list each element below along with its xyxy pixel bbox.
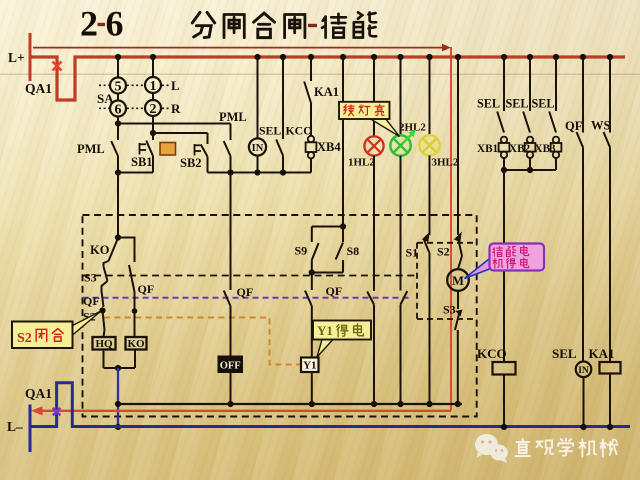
svg-text:1HL2: 1HL2 <box>348 157 375 169</box>
svg-text:S9: S9 <box>295 244 308 258</box>
svg-text:QF: QF <box>326 284 343 298</box>
svg-text:QA1: QA1 <box>25 81 52 96</box>
svg-text:SEL: SEL <box>532 97 555 111</box>
svg-text:KA1: KA1 <box>314 85 339 99</box>
svg-text:QF: QF <box>237 285 254 299</box>
svg-text:6: 6 <box>106 4 124 44</box>
svg-text:L+: L+ <box>8 50 25 65</box>
svg-text:SA: SA <box>97 91 114 106</box>
svg-text:OFF: OFF <box>220 361 241 372</box>
svg-text:SEL: SEL <box>259 124 281 138</box>
svg-text:KO: KO <box>90 243 110 257</box>
svg-text:SB1: SB1 <box>131 155 153 169</box>
svg-text:L–: L– <box>7 419 23 434</box>
svg-text:L: L <box>171 78 180 93</box>
svg-text:6: 6 <box>115 103 122 118</box>
svg-text:KA1: KA1 <box>589 346 615 361</box>
svg-text:IN: IN <box>252 143 264 154</box>
svg-text:XB2: XB2 <box>509 143 531 155</box>
svg-text:KO: KO <box>127 338 145 350</box>
svg-text:R: R <box>171 101 181 116</box>
svg-text:S1: S1 <box>406 246 419 260</box>
svg-text:M: M <box>452 274 464 288</box>
svg-text:KCO: KCO <box>477 346 507 361</box>
svg-text:SB2: SB2 <box>180 156 202 170</box>
svg-text:S2: S2 <box>437 245 450 259</box>
svg-text:1: 1 <box>150 79 157 94</box>
svg-text:IN: IN <box>578 366 589 376</box>
svg-text:XB4: XB4 <box>317 140 341 154</box>
svg-text:XB3: XB3 <box>535 143 557 155</box>
svg-text:Y1: Y1 <box>317 323 333 338</box>
svg-text:WS: WS <box>591 119 611 133</box>
svg-text:2: 2 <box>80 4 98 44</box>
svg-text:QA1: QA1 <box>25 386 52 401</box>
svg-text:XB1: XB1 <box>477 143 499 155</box>
svg-text:S3: S3 <box>84 271 97 285</box>
svg-text:HQ: HQ <box>95 338 113 350</box>
svg-text:QF: QF <box>565 119 583 133</box>
svg-text:PML: PML <box>219 110 247 124</box>
svg-text:QF: QF <box>138 282 155 296</box>
svg-text:KCO: KCO <box>286 124 313 138</box>
svg-text:PML: PML <box>77 142 105 156</box>
svg-text:S3: S3 <box>443 303 456 317</box>
svg-text:Y1: Y1 <box>303 360 316 372</box>
svg-text:S8: S8 <box>347 244 360 258</box>
svg-text:S2: S2 <box>17 331 32 346</box>
svg-text:QF: QF <box>83 294 100 308</box>
svg-text:SEL: SEL <box>477 97 500 111</box>
svg-text:5: 5 <box>115 80 122 95</box>
svg-text:3HL2: 3HL2 <box>432 157 459 169</box>
svg-text:2: 2 <box>150 102 157 117</box>
svg-text:SEL: SEL <box>552 346 577 361</box>
svg-text:SEL: SEL <box>506 97 529 111</box>
